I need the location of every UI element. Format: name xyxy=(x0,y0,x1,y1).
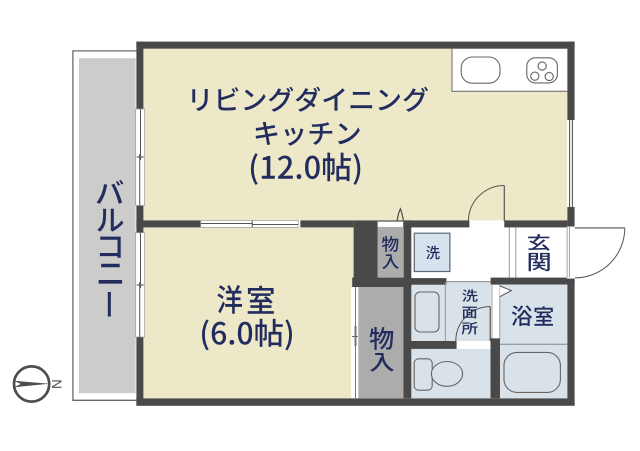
svg-text:N: N xyxy=(49,379,64,389)
